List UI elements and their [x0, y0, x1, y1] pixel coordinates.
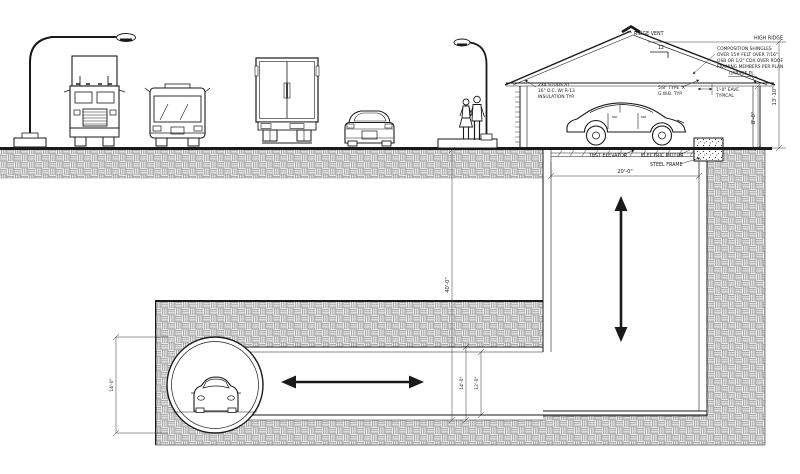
tunnel-bore-circle	[167, 337, 263, 433]
tunnel-interior	[215, 347, 543, 420]
pitch-run-text: 12	[658, 45, 664, 51]
svg-text:8'-0": 8'-0"	[751, 112, 757, 124]
svg-text:40'-0": 40'-0"	[445, 277, 451, 293]
svg-text:12'-0": 12'-0"	[474, 376, 480, 389]
siding-ticks	[515, 92, 520, 142]
under-shaft-ground	[543, 416, 707, 445]
svg-text:20'-0": 20'-0"	[617, 169, 633, 175]
pedestrians	[460, 96, 485, 140]
steel-frame-label: STEEL FRAME	[650, 162, 683, 168]
electric-motor-label: ELECTRIC MOTOR	[641, 153, 684, 159]
street-ground-strip	[0, 150, 543, 178]
shingles-note: COMPOSITION SHINGLES OVER 15# FELT OVER …	[693, 46, 783, 74]
sedan-rear	[345, 111, 394, 146]
elevator-shaft	[543, 138, 723, 416]
roof-left-slope	[505, 31, 631, 85]
svg-text:16" O.C. W/ R-13: 16" O.C. W/ R-13	[538, 88, 575, 94]
svg-text:INSULATION TYP.: INSULATION TYP.	[538, 94, 575, 100]
roof-left-inner	[513, 35, 633, 85]
tunnel-garage-cross-section: 12 RIDGE VENT HIGH RIDGE COMPOSITION SHI…	[0, 0, 800, 474]
high-ridge-label: HIGH RIDGE	[754, 36, 783, 42]
svg-text:GARAGE PL.: GARAGE PL.	[729, 71, 755, 77]
svg-text:14'-0": 14'-0"	[109, 378, 115, 391]
test-elevator-label: TEST ELEVATOR	[588, 153, 628, 159]
svg-text:OVER 15# FELT OVER 7/16": OVER 15# FELT OVER 7/16"	[717, 52, 778, 58]
city-bus	[145, 84, 210, 146]
semi-truck	[64, 56, 125, 146]
svg-text:5/8" TYPE 'X': 5/8" TYPE 'X'	[658, 85, 686, 91]
garage-plate-note: GARAGE PL.	[728, 71, 757, 84]
svg-text:TYPICAL: TYPICAL	[715, 93, 734, 99]
svg-text:14'-0": 14'-0"	[459, 376, 465, 389]
svg-text:G.W.B. TYP.: G.W.B. TYP.	[658, 91, 683, 97]
right-ground-column	[707, 150, 765, 445]
svg-text:1'-0" EAVE: 1'-0" EAVE	[716, 87, 739, 93]
svg-text:COMPOSITION SHINGLES: COMPOSITION SHINGLES	[717, 46, 772, 52]
ridge-vent-label: RIDGE VENT	[634, 31, 664, 37]
box-truck	[255, 58, 319, 143]
svg-text:13'-10": 13'-10"	[772, 87, 778, 106]
shaft-interior	[543, 150, 707, 411]
svg-text:OSB OR 1/2" CDX OVER ROOF: OSB OR 1/2" CDX OVER ROOF	[717, 58, 783, 64]
garage-car	[567, 103, 686, 145]
svg-text:2X4 STUDS AT: 2X4 STUDS AT	[538, 82, 570, 88]
svg-text:FRAMING MEMBERS PER PLAN: FRAMING MEMBERS PER PLAN	[717, 64, 783, 70]
